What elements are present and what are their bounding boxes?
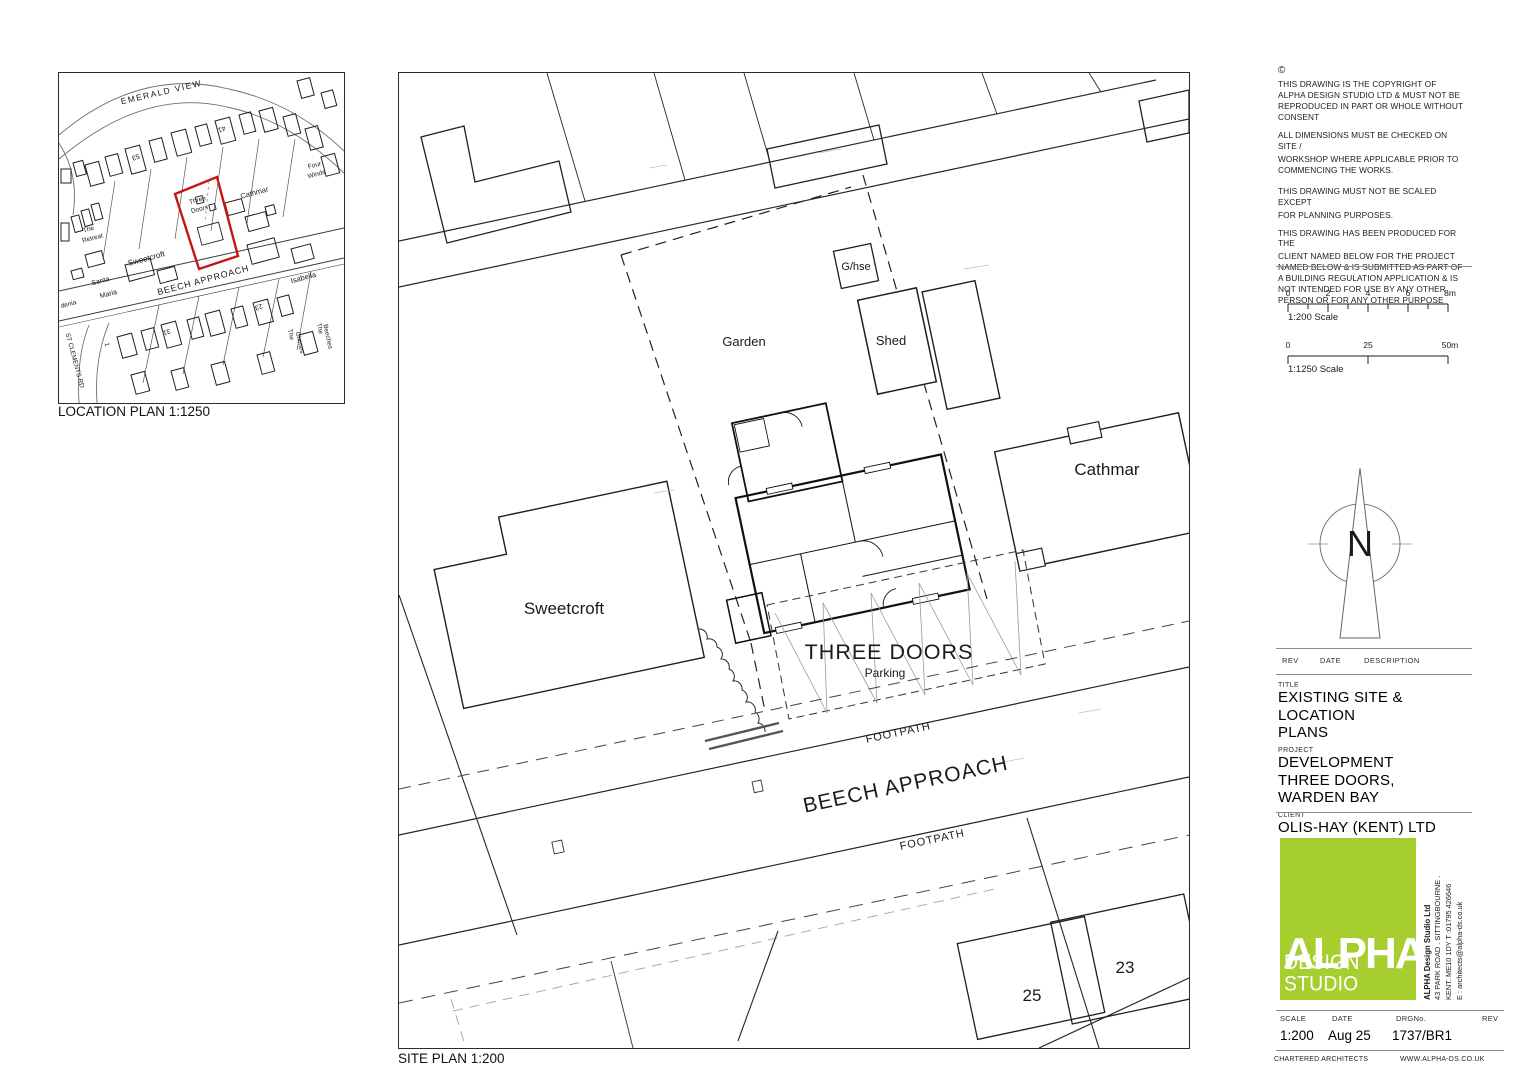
building-corner (1139, 90, 1189, 142)
house-plan (691, 382, 971, 643)
building-east-of-shed (922, 281, 1000, 410)
date-label: DATE (1332, 1014, 1353, 1023)
south-lots (611, 818, 1189, 1048)
scale200-tick-8: 8m (1444, 288, 1456, 298)
label-shed: Shed (876, 333, 906, 348)
label-cathmar-loc: Cathmar (239, 184, 270, 200)
divider (1276, 812, 1472, 813)
studio-address: ALPHA Design Studio Ltd 43 PARK ROAD . S… (1422, 850, 1466, 1000)
scale200-tick-4: 4 (1366, 288, 1371, 298)
top-buildings (421, 90, 1189, 243)
project-name: DEVELOPMENT THREE DOORS, WARDEN BAY (1278, 754, 1438, 807)
label-isabella: Isabella (290, 270, 318, 286)
building-top-left (421, 126, 571, 243)
label-maria: Maria (99, 289, 118, 300)
drgno-label: DRGNo. (1396, 1014, 1426, 1023)
location-labels: EMERALD VIEW 53 41 Four Winds Cathmar Th… (60, 78, 334, 389)
divider (1276, 648, 1472, 649)
drawing-title: EXISTING SITE & LOCATION PLANS (1278, 689, 1408, 742)
drgno-value: 1737/BR1 (1392, 1028, 1452, 1043)
label-three-doors: THREE DOORS (805, 640, 974, 664)
scale1250-label: 1:1250 Scale (1288, 364, 1343, 375)
label-footpath-upper: FOOTPATH (865, 720, 932, 746)
label-cathmar: Cathmar (1074, 460, 1140, 479)
scalebar-1250 (1288, 356, 1448, 364)
description-header: DESCRIPTION (1364, 656, 1420, 665)
divider (1276, 1050, 1504, 1051)
date-header: DATE (1320, 656, 1341, 665)
label-garden: Garden (722, 334, 765, 349)
note-scaling: THIS DRAWING MUST NOT BE SCALED EXCEPT (1278, 186, 1464, 208)
label-chimes1: The (286, 328, 295, 341)
building-25 (957, 917, 1105, 1040)
divider (1276, 266, 1472, 267)
divider (1276, 674, 1472, 675)
scale-bars: 0 2 4 6 8m 1:200 Scale 0 25 50m 1:1250 S… (1282, 284, 1482, 394)
rev-label: REV (1482, 1014, 1498, 1023)
website: WWW.ALPHA-DS.CO.UK (1400, 1056, 1485, 1063)
cathmar-building (995, 413, 1189, 571)
label-ghse: G/hse (841, 261, 870, 273)
label-beech-approach: BEECH APPROACH (801, 752, 1010, 818)
copyright-icon: © (1278, 64, 1464, 77)
location-plan-caption: LOCATION PLAN 1:1250 (58, 404, 210, 419)
label-31: 31 (162, 327, 172, 336)
label-sweetcroft-loc: Sweetcroft (127, 249, 167, 268)
scale-label: SCALE (1280, 1014, 1306, 1023)
site-plan-map: Garden G/hse Shed Cathmar Sweetcroft THR… (399, 73, 1189, 1048)
scale200-tick-2: 2 (1326, 288, 1331, 298)
label-25: 25 (1023, 986, 1042, 1005)
alpha-logo: ALPHA DESIGN STUDIO (1280, 838, 1416, 1000)
label-st-clements: ST CLEMENTS RD (64, 332, 85, 389)
label-denia: denia (60, 299, 78, 310)
date-value: Aug 25 (1328, 1028, 1371, 1043)
north-letter: N (1347, 523, 1373, 564)
red-site-outline (175, 177, 238, 269)
location-plan-panel: EMERALD VIEW 53 41 Four Winds Cathmar Th… (58, 72, 345, 404)
scale1250-tick-0: 0 (1286, 340, 1291, 350)
label-retreat2: Retreat (81, 232, 104, 244)
north-arrow: N (1290, 452, 1430, 662)
sweetcroft-building (426, 481, 704, 708)
label-chimes2: Chimes (294, 331, 306, 355)
hedge (699, 629, 783, 749)
title-block: © THIS DRAWING IS THE COPYRIGHT OF ALPHA… (1272, 62, 1508, 1068)
note-copyright: THIS DRAWING IS THE COPYRIGHT OF ALPHA D… (1278, 79, 1464, 123)
label-1: 1 (103, 342, 111, 348)
rear-lane (399, 73, 1189, 287)
divider (1276, 1010, 1504, 1011)
scalebar-200 (1288, 304, 1448, 312)
label-sweetcroft: Sweetcroft (524, 599, 605, 618)
logo-subtitle: DESIGN STUDIO (1284, 952, 1419, 995)
label-parking: Parking (865, 666, 906, 680)
label-santa: Santa (91, 276, 111, 288)
project-label: PROJECT (1278, 747, 1468, 754)
client-label: CLIENT (1278, 812, 1468, 819)
chartered-architects: CHARTERED ARCHITECTS (1274, 1056, 1368, 1063)
label-53: 53 (131, 152, 141, 161)
scale1250-tick-25: 25 (1363, 340, 1373, 350)
studio-company: ALPHA Design Studio Ltd (1422, 850, 1433, 1000)
notes-section: © THIS DRAWING IS THE COPYRIGHT OF ALPHA… (1278, 64, 1464, 313)
building-top-right (767, 125, 887, 188)
note-planning: FOR PLANNING PURPOSES. (1278, 210, 1464, 221)
note-dimensions: ALL DIMENSIONS MUST BE CHECKED ON SITE / (1278, 130, 1464, 152)
client-name: OLIS-HAY (KENT) LTD (1278, 819, 1468, 837)
scale200-label: 1:200 Scale (1288, 312, 1338, 323)
studio-addr3: E : architects@alpha-ds.co.uk (1455, 850, 1466, 1000)
title-section: TITLE EXISTING SITE & LOCATION PLANS PRO… (1278, 682, 1468, 837)
studio-addr2: KENT. ME10 1DY T :01795 426646 (1444, 850, 1455, 1000)
location-plan-map: EMERALD VIEW 53 41 Four Winds Cathmar Th… (59, 73, 344, 403)
rev-header: REV (1282, 656, 1299, 665)
note-workshop: WORKSHOP WHERE APPLICABLE PRIOR TO COMME… (1278, 154, 1464, 176)
note-produced: THIS DRAWING HAS BEEN PRODUCED FOR THE (1278, 228, 1464, 250)
label-doors: Doors (190, 204, 209, 215)
label-beeches2: Beeches (321, 324, 333, 351)
site-plan-caption: SITE PLAN 1:200 (398, 1051, 505, 1066)
parking-area (767, 550, 1045, 719)
label-23: 23 (1116, 958, 1135, 977)
label-retreat1: The (82, 225, 95, 235)
scale-value: 1:200 (1280, 1028, 1314, 1043)
studio-addr1: 43 PARK ROAD . SITTINGBOURNE . (1433, 850, 1444, 1000)
scale1250-tick-50: 50m (1442, 340, 1459, 350)
scale200-tick-6: 6 (1406, 288, 1411, 298)
site-plan-panel: Garden G/hse Shed Cathmar Sweetcroft THR… (398, 72, 1190, 1049)
title-label: TITLE (1278, 682, 1468, 689)
scale200-tick-0: 0 (1286, 288, 1291, 298)
